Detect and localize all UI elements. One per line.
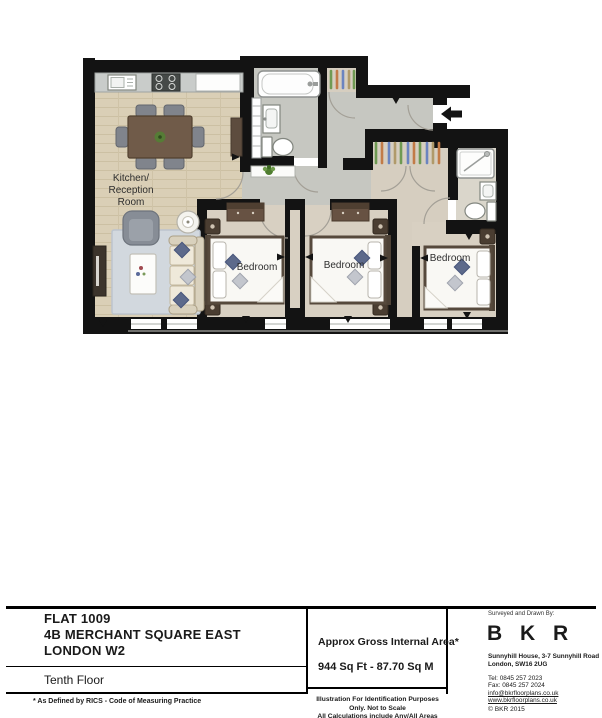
bedroom1-label: Bedroom xyxy=(237,262,278,273)
surveyor-phones: Tel: 0845 257 2023 Fax: 0845 257 2024 xyxy=(488,675,545,690)
disclaimer: Illustration For Identification Purposes… xyxy=(309,696,446,718)
sofa xyxy=(169,236,204,314)
floorplan-page: Kitchen/ Reception Room Bedroom Bedroom … xyxy=(0,0,602,718)
hob-icon xyxy=(152,74,180,91)
shower-sink-icon xyxy=(480,182,496,200)
hall-shelf xyxy=(251,165,295,177)
bathroom-sink-icon xyxy=(263,105,280,133)
sink-icon xyxy=(108,75,136,90)
hallway-strip-floor xyxy=(327,90,365,168)
coffee-table xyxy=(130,254,156,294)
shower-toilet-icon xyxy=(465,202,496,221)
entrance-arrow-icon xyxy=(441,107,462,122)
property-address-line1: 4B MERCHANT SQUARE EAST xyxy=(44,627,241,643)
surveyor-address-line2: London, SW16 2UG xyxy=(488,661,599,669)
tv-unit xyxy=(93,246,106,296)
floor-label: Tenth Floor xyxy=(44,673,104,687)
surveyor-copyright: © BKR 2015 xyxy=(488,706,525,713)
area-value: 944 Sq Ft - 87.70 Sq M xyxy=(318,661,434,673)
rics-note: * As Defined by RICS - Code of Measuring… xyxy=(33,698,201,705)
floor-rule-top xyxy=(6,666,306,667)
area-box-bottom xyxy=(307,687,446,689)
cavity-strip xyxy=(290,210,300,310)
kitchen-label-line3: Room xyxy=(118,197,145,208)
floor-rule-bottom xyxy=(6,692,306,694)
surveyor-fax: Fax: 0845 257 2024 xyxy=(488,682,545,689)
floorplan-canvas: Kitchen/ Reception Room Bedroom Bedroom … xyxy=(0,0,602,600)
surveyor-email-link[interactable]: info@bkrfloorplans.co.uk xyxy=(488,690,558,697)
property-heading: FLAT 1009 4B MERCHANT SQUARE EAST LONDON… xyxy=(44,611,241,659)
property-name: FLAT 1009 xyxy=(44,611,241,627)
towel-radiator-icon xyxy=(252,98,261,158)
surveyor-logo: B K R xyxy=(487,622,574,646)
disclaimer-line1: Illustration For Identification Purposes… xyxy=(309,696,446,713)
bathroom-toilet-icon xyxy=(262,137,293,157)
kitchen-label-line2: Reception xyxy=(108,185,153,196)
surveyor-heading: Surveyed and Drawn By: xyxy=(488,611,554,617)
surveyor-address: Sunnyhill House, 3-7 Sunnyhill Road Lond… xyxy=(488,653,599,668)
armchair xyxy=(123,211,159,245)
kitchen-cabinet xyxy=(231,118,242,156)
side-table-lamp-icon xyxy=(177,211,199,233)
surveyor-address-line1: Sunnyhill House, 3-7 Sunnyhill Road xyxy=(488,653,599,661)
surveyor-website-link[interactable]: www.bkrfloorplans.co.uk xyxy=(488,697,558,704)
kitchen-label-line1: Kitchen/ xyxy=(113,173,149,184)
surveyor-links: info@bkrfloorplans.co.uk www.bkrfloorpla… xyxy=(488,690,558,705)
divider-left-mid xyxy=(306,606,308,694)
divider-mid-right xyxy=(446,606,448,694)
area-label: Approx Gross Internal Area* xyxy=(318,636,459,648)
bathtub-icon xyxy=(258,71,320,97)
bedroom2-label: Bedroom xyxy=(324,260,365,271)
kitchen-counter xyxy=(95,73,243,92)
shower-icon xyxy=(457,149,494,178)
disclaimer-line2: All Calculations include Any/All Areas U… xyxy=(309,713,446,718)
surveyor-tel: Tel: 0845 257 2023 xyxy=(488,675,545,682)
title-block-top-rule xyxy=(6,606,596,609)
property-address-line2: LONDON W2 xyxy=(44,643,241,659)
bedroom3-label: Bedroom xyxy=(430,253,471,264)
